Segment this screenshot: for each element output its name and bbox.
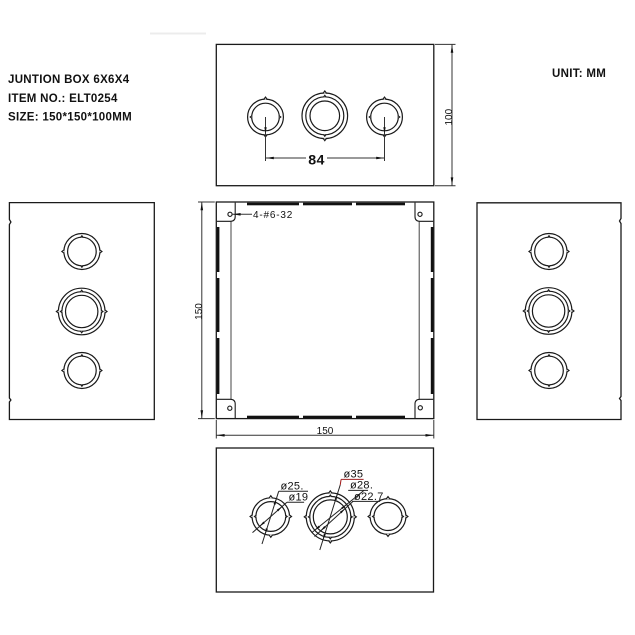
svg-text:100: 100	[444, 108, 455, 125]
svg-text:SIZE: 150*150*100MM: SIZE: 150*150*100MM	[8, 112, 132, 124]
svg-text:JUNTION BOX 6X6X4: JUNTION BOX 6X6X4	[8, 74, 130, 86]
svg-text:84: 84	[308, 153, 325, 169]
svg-text:150: 150	[194, 303, 205, 320]
svg-text:UNIT: MM: UNIT: MM	[552, 68, 606, 80]
svg-text:ITEM NO.: ELT0254: ITEM NO.: ELT0254	[8, 93, 118, 105]
svg-text:4-#6-32: 4-#6-32	[253, 210, 293, 221]
svg-text:150: 150	[317, 426, 334, 437]
